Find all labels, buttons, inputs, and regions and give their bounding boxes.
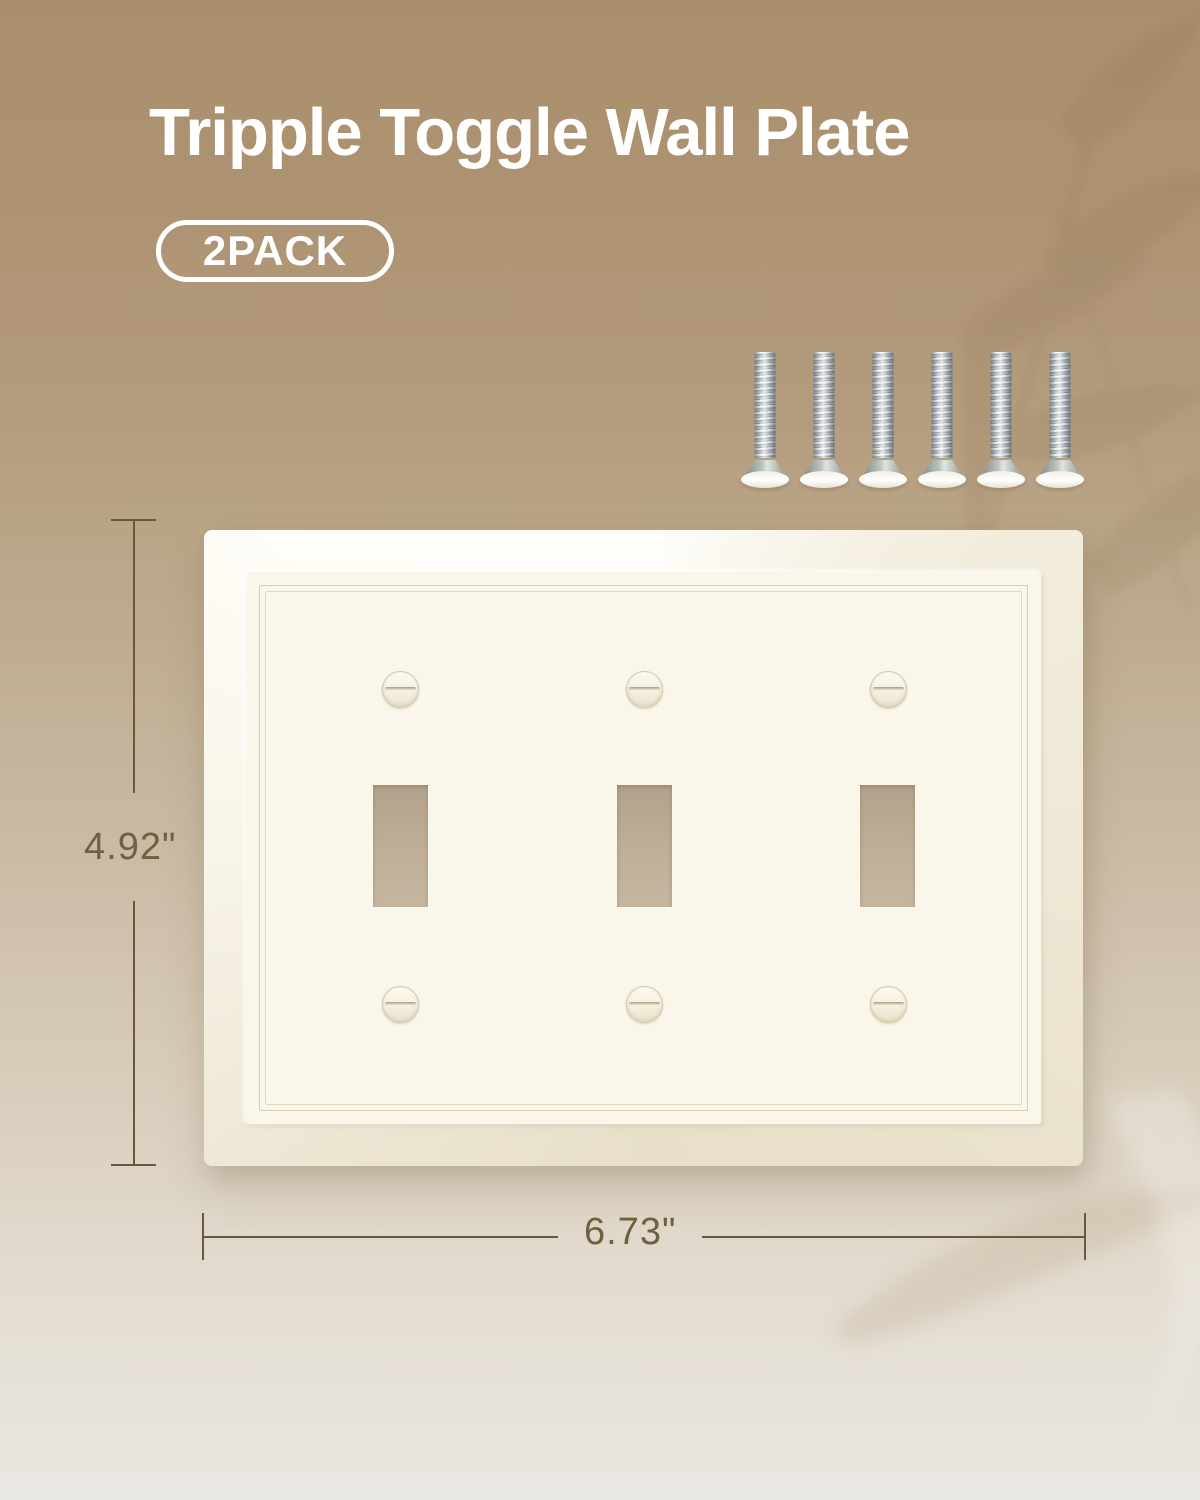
plate-screw xyxy=(626,986,663,1023)
plate-screw xyxy=(382,986,419,1023)
height-dimension-label: 4.92" xyxy=(84,826,176,869)
dimension-line xyxy=(702,1236,1085,1238)
width-dimension-label: 6.73" xyxy=(584,1211,676,1254)
dimension-line xyxy=(204,1236,558,1238)
pack-badge-label: 2PACK xyxy=(203,227,347,275)
screw-head-face xyxy=(1036,471,1084,488)
toggle-cutout xyxy=(373,785,428,907)
screw-thread xyxy=(932,352,953,458)
product-image-canvas: { "header": { "title": "Tripple Toggle W… xyxy=(0,0,1200,1500)
mounting-screw xyxy=(1036,352,1084,488)
wall-plate xyxy=(204,530,1083,1166)
screw-thread xyxy=(814,352,835,458)
screw-thread xyxy=(873,352,894,458)
toggle-cutout xyxy=(617,785,672,907)
mounting-screw xyxy=(918,352,966,488)
mounting-screw xyxy=(977,352,1025,488)
toggle-cutout xyxy=(860,785,915,907)
dimension-tick xyxy=(111,1164,156,1166)
screw-thread xyxy=(755,352,776,458)
screw-head-face xyxy=(859,471,907,488)
mounting-screw-set xyxy=(741,352,1084,488)
screw-head-face xyxy=(741,471,789,488)
dimension-line xyxy=(133,521,135,793)
mounting-screw xyxy=(741,352,789,488)
screw-head-face xyxy=(918,471,966,488)
mounting-screw xyxy=(800,352,848,488)
dimension-tick xyxy=(1084,1213,1086,1260)
plate-screw xyxy=(870,986,907,1023)
screw-thread xyxy=(991,352,1012,458)
screw-head-face xyxy=(800,471,848,488)
screw-head-face xyxy=(977,471,1025,488)
page-title: Tripple Toggle Wall Plate xyxy=(149,94,1049,171)
plate-screw xyxy=(626,671,663,708)
plate-screw xyxy=(382,671,419,708)
screw-thread xyxy=(1050,352,1071,458)
mounting-screw xyxy=(859,352,907,488)
pack-badge: 2PACK xyxy=(156,220,394,282)
dimension-line xyxy=(133,901,135,1166)
plate-screw xyxy=(870,671,907,708)
